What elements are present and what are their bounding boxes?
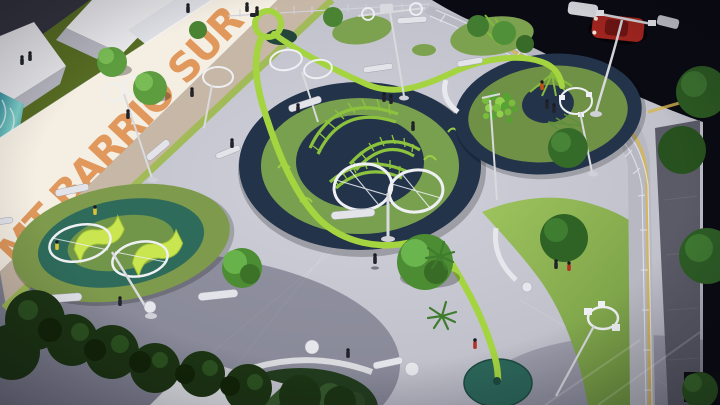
playground-center-circle [238, 82, 486, 257]
tree [189, 21, 207, 39]
stool [305, 340, 319, 354]
stool [522, 282, 532, 292]
tree [516, 35, 534, 53]
child [552, 103, 556, 113]
tree [222, 248, 262, 288]
tree [540, 214, 588, 262]
person [20, 55, 24, 65]
tube-mouth [493, 377, 501, 385]
person [411, 121, 415, 131]
person [118, 296, 122, 306]
tree [323, 7, 343, 27]
person [255, 6, 259, 16]
tree [467, 15, 489, 37]
person [389, 94, 393, 104]
stool [144, 301, 156, 313]
person [190, 87, 194, 97]
person [126, 109, 130, 119]
person [230, 138, 234, 148]
park-render-viewport: MT BARRIO SUR [0, 0, 720, 405]
person [567, 261, 571, 271]
navy-center [296, 115, 424, 209]
child [55, 240, 59, 250]
person [473, 338, 477, 349]
child [545, 99, 549, 109]
person [346, 348, 350, 358]
car-roof [604, 19, 629, 37]
tree [548, 128, 588, 168]
person [554, 259, 558, 269]
person [28, 51, 32, 61]
person [186, 3, 190, 13]
stool [405, 362, 419, 376]
person [382, 92, 386, 102]
child [540, 80, 544, 90]
person [296, 103, 300, 113]
child [93, 205, 97, 215]
tree [492, 21, 516, 45]
sculpture-base [145, 313, 157, 319]
park-aerial-render: MT BARRIO SUR [0, 0, 720, 405]
sculpture-base [381, 236, 395, 242]
